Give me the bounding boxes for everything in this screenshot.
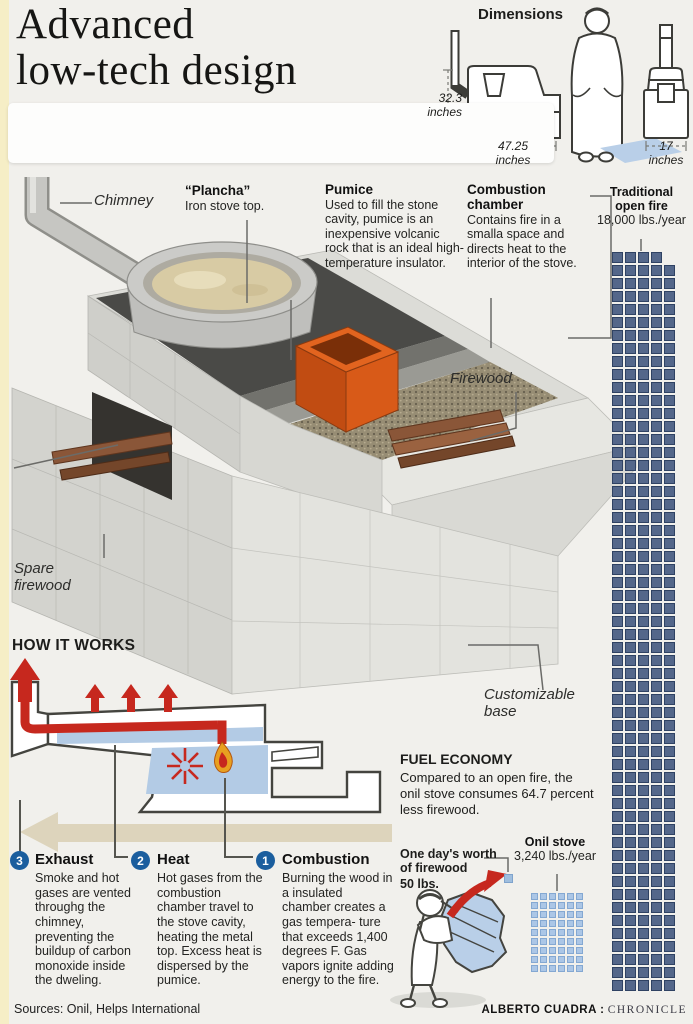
unit-square (664, 746, 675, 757)
unit-square (664, 551, 675, 562)
credit-organization: CHRONICLE (608, 1004, 687, 1016)
unit-square (638, 304, 649, 315)
unit-square (638, 421, 649, 432)
unit-square (664, 915, 675, 926)
unit-square (625, 590, 636, 601)
unit-square (612, 941, 623, 952)
open-fire-unit-grid (612, 252, 675, 991)
unit-square (612, 369, 623, 380)
unit-square (612, 837, 623, 848)
unit-square (612, 538, 623, 549)
fuel-economy-heading: FUEL ECONOMY (400, 751, 595, 767)
unit-square (651, 525, 662, 536)
unit-square (625, 798, 636, 809)
unit-square (549, 965, 556, 972)
unit-square (664, 928, 675, 939)
unit-square (625, 733, 636, 744)
open-fire-legend: Traditional open fire 18,000 lbs./year (592, 185, 691, 227)
unit-square (612, 590, 623, 601)
unit-square (651, 564, 662, 575)
unit-square (664, 382, 675, 393)
unit-square (638, 382, 649, 393)
unit-square (625, 720, 636, 731)
unit-square (625, 434, 636, 445)
unit-square (549, 938, 556, 945)
unit-square (651, 590, 662, 601)
unit-square (558, 956, 565, 963)
unit-square (638, 785, 649, 796)
unit-square (664, 395, 675, 406)
onil-stove-title: Onil stove (512, 835, 598, 849)
unit-square (638, 265, 649, 276)
unit-square (549, 902, 556, 909)
pumice-body: Used to fill the stone cavity, pumice is… (325, 198, 465, 271)
unit-square (625, 811, 636, 822)
unit-square (625, 681, 636, 692)
grid-row (612, 252, 675, 263)
grid-row (612, 681, 675, 692)
unit-square (576, 938, 583, 945)
unit-square (638, 343, 649, 354)
unit-square (638, 694, 649, 705)
unit-square (638, 668, 649, 679)
unit-square (638, 512, 649, 523)
unit-square (625, 577, 636, 588)
unit-square (625, 486, 636, 497)
unit-square (625, 278, 636, 289)
grid-row (612, 460, 675, 471)
unit-square (664, 655, 675, 666)
unit-square (638, 707, 649, 718)
unit-square (664, 278, 675, 289)
unit-square (625, 915, 636, 926)
unit-square (567, 911, 574, 918)
unit-square (651, 902, 662, 913)
unit-square (651, 317, 662, 328)
unit-square (612, 876, 623, 887)
unit-square (638, 564, 649, 575)
dimensions-heading: Dimensions (478, 6, 563, 23)
unit-square (638, 317, 649, 328)
unit-square (651, 850, 662, 861)
unit-square (540, 947, 547, 954)
unit-square (638, 473, 649, 484)
unit-square (567, 965, 574, 972)
open-fire-title: Traditional open fire (592, 185, 691, 213)
unit-square (651, 954, 662, 965)
grid-row (612, 824, 675, 835)
unit-square (664, 421, 675, 432)
step-2-badge: 2 (131, 851, 150, 870)
unit-square (664, 720, 675, 731)
step-3-badge: 3 (10, 851, 29, 870)
unit-square (664, 824, 675, 835)
sources-line: Sources: Onil, Helps International (14, 1002, 200, 1016)
unit-square (576, 965, 583, 972)
unit-square (664, 967, 675, 978)
unit-square (651, 538, 662, 549)
grid-row (612, 668, 675, 679)
unit-square (651, 941, 662, 952)
unit-square (612, 382, 623, 393)
unit-square (612, 512, 623, 523)
unit-square (651, 889, 662, 900)
grid-row (612, 967, 675, 978)
grid-row (531, 929, 583, 936)
unit-square (567, 920, 574, 927)
unit-square (664, 902, 675, 913)
unit-square (531, 902, 538, 909)
unit-square (651, 395, 662, 406)
unit-square (567, 947, 574, 954)
grid-row (612, 863, 675, 874)
grid-row (612, 369, 675, 380)
unit-square (612, 642, 623, 653)
unit-square (664, 681, 675, 692)
step-3-body: Smoke and hot gases are vented throughg … (35, 871, 143, 988)
open-fire-value: 18,000 lbs./year (592, 213, 691, 227)
grid-row (612, 759, 675, 770)
unit-square (638, 772, 649, 783)
unit-square (558, 902, 565, 909)
grid-row (612, 291, 675, 302)
unit-square (664, 291, 675, 302)
unit-square (664, 369, 675, 380)
unit-square (664, 772, 675, 783)
unit-square (531, 947, 538, 954)
unit-square (638, 837, 649, 848)
credit-line: ALBERTO CUADRA : CHRONICLE (481, 1004, 687, 1016)
unit-square (664, 473, 675, 484)
unit-square (558, 920, 565, 927)
grid-row (612, 278, 675, 289)
unit-square (664, 330, 675, 341)
unit-square (612, 655, 623, 666)
grid-row (612, 850, 675, 861)
unit-square (638, 915, 649, 926)
unit-square (625, 317, 636, 328)
flame-icon (215, 742, 233, 773)
infographic-root: Advanced low-tech design Dimensions 32.3… (0, 0, 693, 1024)
unit-square (664, 434, 675, 445)
unit-square (638, 356, 649, 367)
unit-square (651, 785, 662, 796)
grid-row (531, 947, 583, 954)
unit-square (625, 863, 636, 874)
unit-square (651, 811, 662, 822)
grid-row (612, 772, 675, 783)
grid-row (612, 343, 675, 354)
unit-square (638, 525, 649, 536)
unit-square (612, 473, 623, 484)
unit-square (612, 265, 623, 276)
unit-square (664, 538, 675, 549)
unit-square (625, 499, 636, 510)
unit-square (638, 967, 649, 978)
unit-square (576, 956, 583, 963)
grid-row (531, 956, 583, 963)
unit-square (540, 956, 547, 963)
unit-square (625, 265, 636, 276)
unit-square (612, 759, 623, 770)
unit-square (651, 694, 662, 705)
unit-square (664, 941, 675, 952)
pumice-title: Pumice (325, 183, 465, 198)
unit-square (625, 395, 636, 406)
unit-square (664, 343, 675, 354)
unit-square (664, 863, 675, 874)
unit-square (625, 356, 636, 367)
unit-square (531, 911, 538, 918)
grid-row (612, 590, 675, 601)
unit-square (638, 291, 649, 302)
unit-square (664, 980, 675, 991)
unit-square (612, 356, 623, 367)
unit-square (612, 343, 623, 354)
unit-square (664, 590, 675, 601)
unit-square (612, 681, 623, 692)
unit-square (638, 408, 649, 419)
unit-square (638, 876, 649, 887)
unit-square (612, 603, 623, 614)
unit-square (531, 920, 538, 927)
unit-square (612, 252, 623, 263)
unit-square (664, 265, 675, 276)
unit-square (558, 947, 565, 954)
customizable-base-label: Customizable base (484, 686, 575, 720)
unit-square (638, 395, 649, 406)
unit-square (638, 460, 649, 471)
unit-square (651, 733, 662, 744)
unit-square (625, 837, 636, 848)
unit-square (651, 655, 662, 666)
unit-square (612, 564, 623, 575)
dimension-height-label: 32.3 inches (414, 92, 462, 120)
unit-square (651, 577, 662, 588)
unit-square (638, 759, 649, 770)
unit-square (576, 911, 583, 918)
grid-row (531, 965, 583, 972)
unit-square (625, 759, 636, 770)
unit-square (664, 356, 675, 367)
unit-square (638, 954, 649, 965)
grid-row (612, 447, 675, 458)
unit-square (651, 265, 662, 276)
unit-square (567, 929, 574, 936)
unit-square (612, 707, 623, 718)
unit-square (664, 525, 675, 536)
one-day-unit-square (504, 874, 513, 883)
unit-square (625, 421, 636, 432)
unit-square (638, 538, 649, 549)
unit-square (612, 902, 623, 913)
unit-square (664, 512, 675, 523)
unit-square (567, 893, 574, 900)
unit-square (612, 486, 623, 497)
grid-row (612, 655, 675, 666)
unit-square (612, 772, 623, 783)
unit-square (664, 785, 675, 796)
unit-square (664, 603, 675, 614)
pumice-callout: Pumice Used to fill the stone cavity, pu… (325, 183, 465, 270)
unit-square (625, 525, 636, 536)
grid-row (612, 746, 675, 757)
plancha-callout: “Plancha” Iron stove top. (185, 184, 315, 213)
unit-square (612, 889, 623, 900)
unit-square (638, 720, 649, 731)
unit-square (651, 837, 662, 848)
grid-row (531, 938, 583, 945)
unit-square (638, 499, 649, 510)
unit-square (664, 694, 675, 705)
onil-stove-legend: Onil stove 3,240 lbs./year (512, 835, 598, 863)
unit-square (638, 941, 649, 952)
unit-square (651, 642, 662, 653)
unit-square (651, 616, 662, 627)
unit-square (612, 460, 623, 471)
unit-square (651, 304, 662, 315)
grid-row (612, 551, 675, 562)
firewood-carrier-figure (390, 890, 506, 1008)
unit-square (664, 954, 675, 965)
unit-square (558, 938, 565, 945)
unit-square (625, 746, 636, 757)
unit-square (625, 694, 636, 705)
grid-row (612, 577, 675, 588)
grid-row (612, 837, 675, 848)
unit-square (625, 382, 636, 393)
unit-square (612, 408, 623, 419)
unit-square (612, 395, 623, 406)
grid-row (612, 798, 675, 809)
unit-square (651, 798, 662, 809)
unit-square (651, 551, 662, 562)
unit-square (651, 499, 662, 510)
unit-square (651, 863, 662, 874)
onil-stove-unit-grid (531, 893, 583, 972)
unit-square (612, 330, 623, 341)
unit-square (664, 837, 675, 848)
unit-square (651, 330, 662, 341)
unit-square (638, 980, 649, 991)
unit-square (638, 733, 649, 744)
unit-square (625, 967, 636, 978)
unit-square (664, 642, 675, 653)
unit-square (638, 330, 649, 341)
one-day-firewood-value: 50 lbs. (400, 877, 439, 891)
grid-row (612, 473, 675, 484)
unit-square (638, 928, 649, 939)
unit-square (549, 893, 556, 900)
step-2-body: Hot gases from the combustion chamber tr… (157, 871, 267, 988)
unit-square (651, 434, 662, 445)
unit-square (664, 577, 675, 588)
grid-row (612, 694, 675, 705)
unit-square (612, 551, 623, 562)
unit-square (612, 278, 623, 289)
unit-square (638, 616, 649, 627)
unit-square (625, 460, 636, 471)
unit-square (612, 928, 623, 939)
unit-square (651, 356, 662, 367)
unit-square (664, 707, 675, 718)
grid-row (612, 980, 675, 991)
unit-square (651, 369, 662, 380)
unit-square (612, 447, 623, 458)
unit-square (540, 902, 547, 909)
unit-square (638, 447, 649, 458)
unit-square (531, 893, 538, 900)
unit-square (638, 590, 649, 601)
unit-square (638, 434, 649, 445)
unit-square (651, 473, 662, 484)
combustion-title: Combustion chamber (467, 183, 587, 213)
grid-row (612, 265, 675, 276)
unit-square (625, 941, 636, 952)
unit-square (625, 512, 636, 523)
unit-square (664, 304, 675, 315)
unit-square (612, 304, 623, 315)
unit-square (651, 759, 662, 770)
unit-square (625, 954, 636, 965)
unit-square (612, 694, 623, 705)
unit-square (638, 603, 649, 614)
unit-square (664, 798, 675, 809)
unit-square (638, 681, 649, 692)
unit-square (612, 668, 623, 679)
unit-square (651, 252, 662, 263)
unit-square (651, 720, 662, 731)
grid-row (612, 733, 675, 744)
grid-row (612, 889, 675, 900)
unit-square (651, 668, 662, 679)
unit-square (638, 655, 649, 666)
grid-row (612, 512, 675, 523)
unit-square (612, 785, 623, 796)
grid-row (531, 920, 583, 927)
unit-square (664, 317, 675, 328)
combustion-body: Contains fire in a smalla space and dire… (467, 213, 587, 271)
unit-square (567, 902, 574, 909)
unit-square (638, 902, 649, 913)
unit-square (576, 920, 583, 927)
step-connector-lines (20, 745, 253, 857)
grid-row (612, 525, 675, 536)
unit-square (651, 291, 662, 302)
grid-row (612, 616, 675, 627)
unit-square (638, 863, 649, 874)
unit-square (612, 525, 623, 536)
unit-square (664, 759, 675, 770)
unit-square (651, 447, 662, 458)
grid-row (612, 499, 675, 510)
grid-row (531, 893, 583, 900)
unit-square (651, 746, 662, 757)
unit-square (625, 473, 636, 484)
unit-square (612, 616, 623, 627)
unit-square (625, 252, 636, 263)
plancha-title: “Plancha” (185, 184, 315, 199)
unit-square (664, 629, 675, 640)
unit-square (664, 447, 675, 458)
unit-square (625, 902, 636, 913)
grid-row (612, 564, 675, 575)
unit-square (664, 564, 675, 575)
grid-row (612, 421, 675, 432)
unit-square (664, 668, 675, 679)
step-1-badge: 1 (256, 851, 275, 870)
step-1-title: Combustion (282, 851, 370, 868)
